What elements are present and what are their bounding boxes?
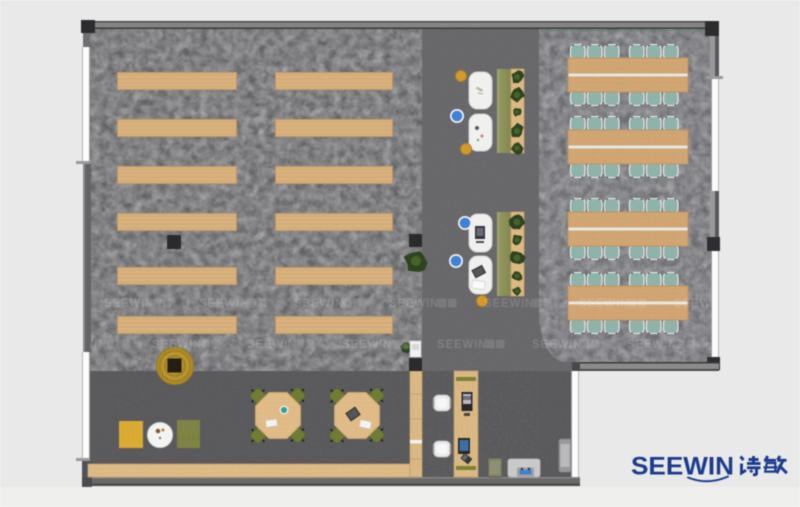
svg-text:SEEWIN: SEEWIN [57,339,107,351]
svg-text:SEEWIN: SEEWIN [104,298,154,310]
svg-text:SEEWIN: SEEWIN [579,298,629,310]
svg-text:SEEWIN: SEEWIN [484,298,534,310]
svg-text:SEEWIN: SEEWIN [674,298,724,310]
svg-text:SEEWIN: SEEWIN [437,339,487,351]
svg-text:SEEWIN: SEEWIN [627,339,677,351]
svg-text:SEEWIN: SEEWIN [199,298,249,310]
svg-text:SEEWIN: SEEWIN [389,298,439,310]
svg-text:SEEWIN: SEEWIN [532,339,582,351]
svg-text:SEEWIN: SEEWIN [342,339,392,351]
svg-text:SEEWIN: SEEWIN [631,453,734,481]
svg-text:SEEWIN: SEEWIN [152,339,202,351]
svg-text:SEEWIN: SEEWIN [769,298,800,310]
svg-text:SEEWIN: SEEWIN [722,339,772,351]
svg-text:SEEWIN: SEEWIN [247,339,297,351]
svg-text:SEEWIN: SEEWIN [9,298,59,310]
svg-text:SEEWIN: SEEWIN [294,298,344,310]
svg-text:SEEWIN: SEEWIN [0,339,12,351]
